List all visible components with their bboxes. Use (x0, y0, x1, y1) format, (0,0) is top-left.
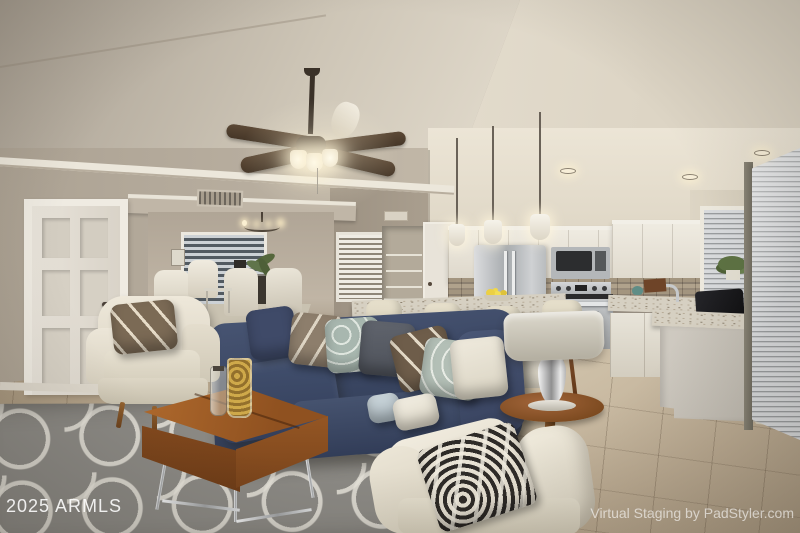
microwave (551, 247, 610, 279)
pendant-light (530, 112, 550, 242)
door-panel (42, 270, 70, 316)
glass-vase (210, 366, 227, 416)
table-lamp (504, 312, 604, 418)
kettle (632, 286, 643, 295)
pendant-light (484, 126, 502, 246)
pendant-cord (539, 112, 541, 216)
door-panel (42, 328, 70, 384)
pendant-shade (530, 214, 550, 240)
fruit-bowl (484, 289, 512, 301)
blinds-sheen (752, 148, 800, 440)
photo-living-room-kitchen: 2025 ARMLS Virtual Staging by PadStyler.… (0, 0, 800, 533)
fan-uplight-shade (327, 99, 364, 142)
chandelier-bulb (242, 220, 247, 226)
lamp-base-disk (528, 400, 576, 411)
lamp-base-chrome (538, 354, 566, 404)
pendant-light (449, 138, 465, 248)
slider-frame-edge (744, 162, 753, 430)
table-frame-bar (236, 508, 312, 523)
recessed-light (682, 174, 698, 180)
thermostat (171, 249, 185, 266)
range-dial (556, 286, 561, 291)
nook-shelf (386, 286, 422, 288)
throw-pillow-cream (449, 335, 509, 400)
chandelier-arms (244, 222, 280, 232)
fan-light-shade (306, 153, 323, 172)
microwave-window (556, 251, 592, 271)
table-frame-bar (162, 499, 240, 511)
shutter-window (336, 232, 387, 302)
chandelier-stem (261, 212, 263, 222)
door-panel (80, 218, 108, 258)
recessed-light (560, 168, 576, 174)
slider-door-blinds (752, 148, 800, 440)
pendant-cord (492, 126, 494, 222)
fridge-handle (512, 251, 515, 299)
ceiling-fan (220, 64, 410, 194)
filled-vase (227, 358, 252, 418)
lamp-shade (503, 310, 605, 361)
plant-pot (726, 270, 740, 280)
cutting-board (644, 278, 667, 293)
door-panel (42, 218, 70, 258)
pendant-shade (484, 220, 502, 244)
nook-shelf (386, 254, 422, 256)
wall-vent-small (384, 211, 408, 221)
watermark-armls: 2025 ARMLS (6, 496, 122, 517)
chair-leg (116, 402, 125, 428)
fan-downrod (308, 74, 315, 134)
fan-light-shade (322, 149, 338, 167)
microwave-controls (595, 251, 606, 271)
fan-light-shade (290, 150, 307, 169)
pendant-shade (449, 224, 465, 246)
bowl (484, 295, 512, 301)
fan-pull-chain (317, 168, 318, 194)
pendant-cord (456, 138, 458, 226)
throw-pillow-brown-chevron (110, 299, 179, 355)
accent-chair-foreground (372, 420, 602, 533)
recessed-light (754, 150, 770, 156)
door-knob (428, 282, 432, 286)
chandelier (240, 218, 284, 234)
watermark-padstyler: Virtual Staging by PadStyler.com (590, 505, 794, 521)
nook-shelf (386, 270, 422, 272)
range-display (575, 285, 587, 291)
vase-rim (213, 366, 224, 371)
